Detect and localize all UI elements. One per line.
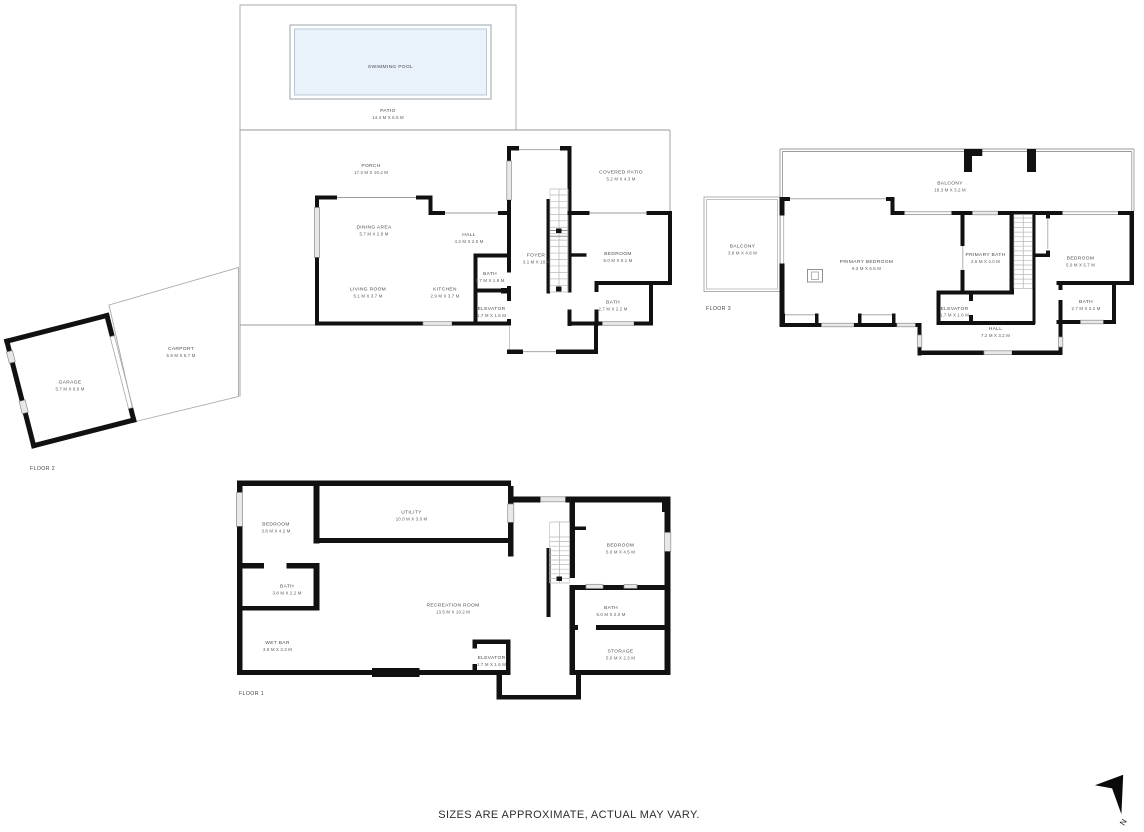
svg-text:BEDROOM: BEDROOM bbox=[604, 251, 631, 257]
svg-text:BEDROOM: BEDROOM bbox=[607, 543, 634, 549]
svg-text:SIZES ARE APPROXIMATE, ACTUAL: SIZES ARE APPROXIMATE, ACTUAL MAY VARY. bbox=[438, 809, 700, 821]
svg-text:3.8 M X 2.2 M: 3.8 M X 2.2 M bbox=[273, 591, 302, 596]
svg-text:UTILITY: UTILITY bbox=[401, 510, 422, 516]
svg-text:ELEVATOR: ELEVATOR bbox=[941, 306, 969, 312]
svg-text:SWIMMING POOL: SWIMMING POOL bbox=[368, 64, 413, 70]
svg-text:4.3 M X 2.0 M: 4.3 M X 2.0 M bbox=[455, 239, 484, 244]
svg-text:1.7 M X 1.6 M: 1.7 M X 1.6 M bbox=[940, 313, 969, 318]
svg-text:14.4 M X 6.5 M: 14.4 M X 6.5 M bbox=[372, 115, 404, 120]
svg-text:2.7 M X 2.2 M: 2.7 M X 2.2 M bbox=[599, 306, 628, 311]
svg-text:BATH: BATH bbox=[606, 299, 620, 305]
svg-text:KITCHEN: KITCHEN bbox=[433, 287, 457, 293]
svg-text:BEDROOM: BEDROOM bbox=[1067, 256, 1094, 262]
svg-text:3.1 M X 10.4: 3.1 M X 10.4 bbox=[523, 260, 550, 265]
svg-text:2.5 M X 4.0 M: 2.5 M X 4.0 M bbox=[971, 259, 1000, 264]
svg-text:3.8 M X 4.8 M: 3.8 M X 4.8 M bbox=[728, 251, 757, 256]
svg-text:FLOOR 3: FLOOR 3 bbox=[706, 306, 731, 312]
svg-text:FOYER: FOYER bbox=[527, 253, 546, 259]
svg-text:FLOOR 1: FLOOR 1 bbox=[239, 691, 264, 697]
svg-text:5.0 M X 5.1 M: 5.0 M X 5.1 M bbox=[604, 258, 633, 263]
svg-text:5.0 M X 2.0 M: 5.0 M X 2.0 M bbox=[597, 612, 626, 617]
svg-text:BATH: BATH bbox=[1079, 299, 1093, 305]
svg-text:PRIMARY BATH: PRIMARY BATH bbox=[966, 252, 1006, 258]
svg-text:13.5 M X 10.2 M: 13.5 M X 10.2 M bbox=[436, 610, 470, 615]
svg-text:10.0 M X 3.0 M: 10.0 M X 3.0 M bbox=[396, 517, 428, 522]
svg-text:LIVING ROOM: LIVING ROOM bbox=[350, 287, 386, 293]
svg-text:18.3 M X 3.2 M: 18.3 M X 3.2 M bbox=[934, 188, 966, 193]
svg-text:5.0 M X 5.7 M: 5.0 M X 5.7 M bbox=[1066, 263, 1095, 268]
svg-text:RECREATION ROOM: RECREATION ROOM bbox=[426, 603, 479, 609]
svg-text:BALCONY: BALCONY bbox=[937, 181, 963, 187]
svg-text:5.7 M X 2.8 M: 5.7 M X 2.8 M bbox=[360, 232, 389, 237]
svg-text:BALCONY: BALCONY bbox=[730, 244, 756, 250]
svg-text:5.2 M X 4.3 M: 5.2 M X 4.3 M bbox=[607, 177, 636, 182]
svg-text:BATH: BATH bbox=[280, 584, 294, 590]
svg-text:6.9 M X 6.7 M: 6.9 M X 6.7 M bbox=[167, 353, 196, 358]
svg-text:5.0 M X 2.3 M: 5.0 M X 2.3 M bbox=[606, 656, 635, 661]
svg-text:GARAGE: GARAGE bbox=[59, 380, 82, 386]
svg-text:PORCH: PORCH bbox=[361, 163, 380, 169]
svg-text:5.1 M X 3.7 M: 5.1 M X 3.7 M bbox=[354, 294, 383, 299]
svg-text:BATH: BATH bbox=[483, 271, 497, 277]
svg-text:1.7 M X 1.6 M: 1.7 M X 1.6 M bbox=[477, 313, 506, 318]
svg-text:ELEVATOR: ELEVATOR bbox=[478, 655, 506, 661]
svg-text:9.3 M X 6.5 M: 9.3 M X 6.5 M bbox=[852, 266, 881, 271]
svg-text:3.9 M X 3.3 M: 3.9 M X 3.3 M bbox=[263, 647, 292, 652]
svg-text:HALL: HALL bbox=[462, 232, 476, 238]
svg-text:17.3 M X 10.2 M: 17.3 M X 10.2 M bbox=[354, 170, 388, 175]
svg-text:5.0 M X 4.5 M: 5.0 M X 4.5 M bbox=[606, 550, 635, 555]
svg-text:3.8 M X 4.2 M: 3.8 M X 4.2 M bbox=[262, 529, 291, 534]
svg-text:BEDROOM: BEDROOM bbox=[262, 522, 289, 528]
svg-text:HALL: HALL bbox=[989, 326, 1003, 332]
svg-text:DINING AREA: DINING AREA bbox=[356, 225, 391, 231]
svg-text:2.9 M X 3.7 M: 2.9 M X 3.7 M bbox=[431, 294, 460, 299]
svg-text:FLOOR 2: FLOOR 2 bbox=[30, 466, 55, 472]
svg-text:7.2 M X 3.2 M: 7.2 M X 3.2 M bbox=[981, 333, 1010, 338]
svg-text:PATIO: PATIO bbox=[380, 108, 396, 114]
svg-text:PRIMARY BEDROOM: PRIMARY BEDROOM bbox=[840, 259, 894, 265]
svg-text:1.7 M X 1.9 M: 1.7 M X 1.9 M bbox=[476, 278, 505, 283]
svg-text:1.7 M X 1.6 M: 1.7 M X 1.6 M bbox=[477, 662, 506, 667]
svg-text:COVERED PATIO: COVERED PATIO bbox=[599, 170, 643, 176]
svg-text:BATH: BATH bbox=[604, 605, 618, 611]
svg-text:STORAGE: STORAGE bbox=[607, 649, 633, 655]
svg-text:5.7 M X 6.0 M: 5.7 M X 6.0 M bbox=[56, 387, 85, 392]
svg-text:CARPORT: CARPORT bbox=[168, 346, 194, 352]
svg-text:2.7 M X 2.2 M: 2.7 M X 2.2 M bbox=[1072, 306, 1101, 311]
svg-text:ELEVATOR: ELEVATOR bbox=[478, 306, 506, 312]
svg-text:WET BAR: WET BAR bbox=[265, 640, 290, 646]
